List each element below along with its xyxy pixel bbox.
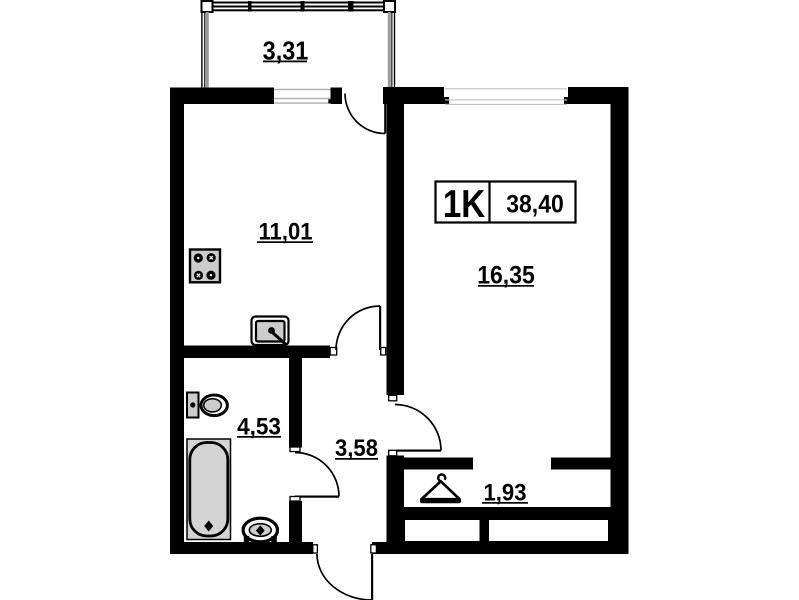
svg-text:4,53: 4,53 bbox=[237, 413, 281, 440]
svg-text:1K: 1K bbox=[443, 183, 485, 226]
svg-text:11,01: 11,01 bbox=[258, 218, 312, 245]
svg-text:3,58: 3,58 bbox=[335, 434, 378, 461]
svg-text:1,93: 1,93 bbox=[484, 479, 527, 506]
svg-text:38,40: 38,40 bbox=[506, 191, 564, 219]
